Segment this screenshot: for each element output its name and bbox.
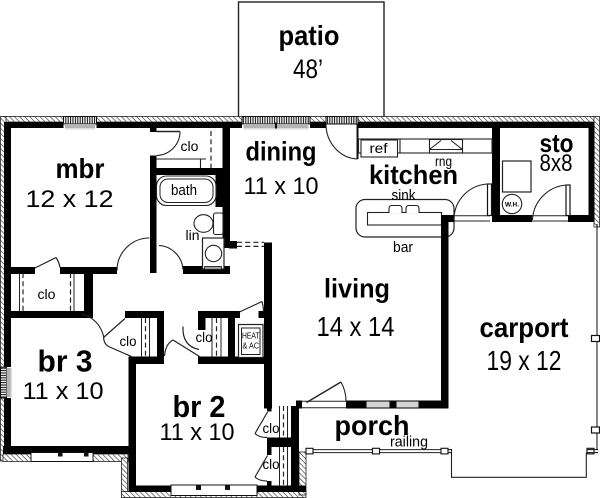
svg-text:mbr: mbr (56, 153, 105, 184)
svg-text:carport: carport (480, 312, 569, 343)
svg-text:kitchen: kitchen (369, 160, 458, 190)
svg-text:W.H.: W.H. (505, 202, 519, 209)
svg-text:clo: clo (120, 333, 137, 349)
svg-text:clo: clo (38, 286, 56, 302)
svg-text:clo: clo (181, 138, 199, 154)
svg-text:dining: dining (246, 137, 317, 167)
svg-text:railing: railing (390, 434, 428, 451)
svg-text:ref: ref (370, 140, 388, 156)
svg-text:HEAT: HEAT (242, 331, 260, 341)
svg-text:12 x 12: 12 x 12 (26, 186, 114, 213)
svg-text:19 x 12: 19 x 12 (487, 345, 562, 376)
svg-text:11 x 10: 11 x 10 (244, 173, 319, 200)
svg-text:clo: clo (263, 456, 280, 472)
svg-text:br 3: br 3 (38, 344, 93, 379)
svg-text:clo: clo (263, 420, 280, 436)
svg-text:11 x 10: 11 x 10 (160, 419, 235, 446)
svg-text:bar: bar (393, 239, 413, 256)
svg-text:patio: patio (279, 20, 340, 51)
svg-text:clo: clo (196, 329, 213, 345)
svg-text:14 x 14: 14 x 14 (317, 311, 395, 342)
svg-text:bath: bath (171, 182, 197, 199)
svg-text:48’: 48’ (293, 54, 323, 84)
svg-text:& AC: & AC (243, 341, 260, 351)
svg-text:8x8: 8x8 (540, 150, 573, 177)
svg-text:11 x 10: 11 x 10 (23, 378, 104, 405)
svg-text:living: living (324, 274, 390, 304)
svg-text:lin: lin (186, 227, 200, 243)
